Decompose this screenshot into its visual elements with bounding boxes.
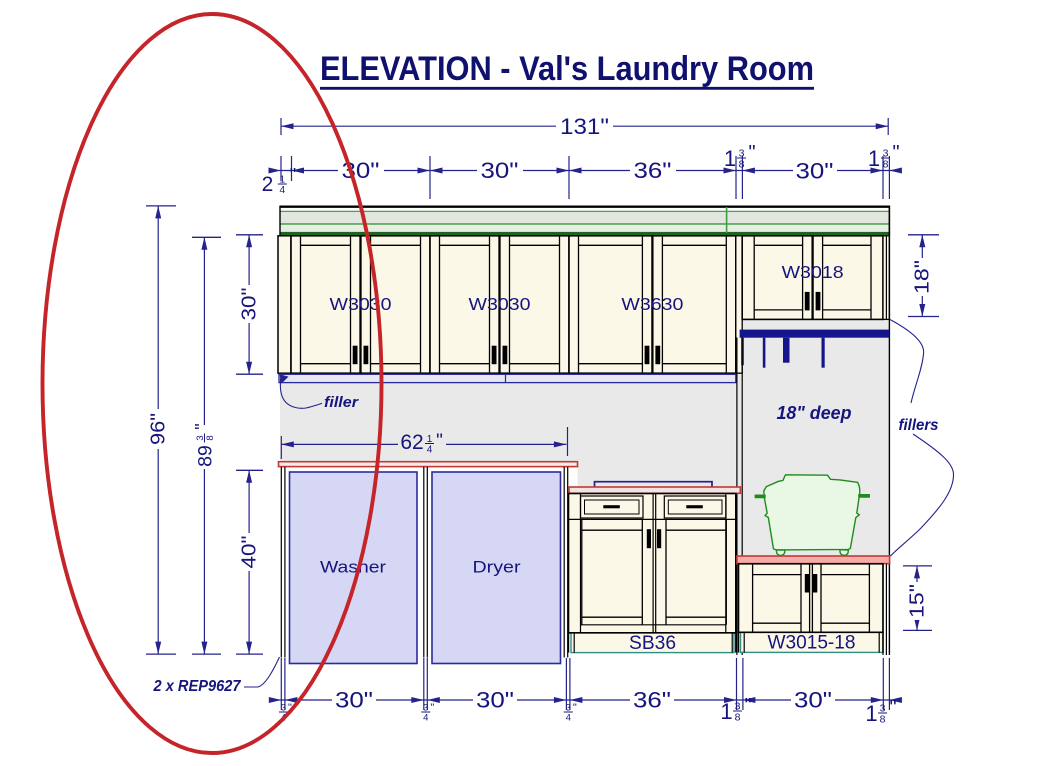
svg-text:131": 131" <box>560 114 609 139</box>
svg-text:8: 8 <box>205 435 216 440</box>
svg-text:1: 1 <box>868 146 880 171</box>
svg-text:30": 30" <box>335 688 373 713</box>
svg-text:30": 30" <box>476 688 514 713</box>
svg-text:4: 4 <box>427 445 433 456</box>
svg-text:18" deep: 18" deep <box>777 403 852 423</box>
svg-text:30": 30" <box>238 288 261 321</box>
svg-text:8: 8 <box>883 159 889 171</box>
svg-text:4: 4 <box>423 713 428 724</box>
svg-text:W3030: W3030 <box>469 294 531 314</box>
svg-text:filler: filler <box>324 394 359 411</box>
svg-text:1: 1 <box>720 699 732 724</box>
svg-text:36": 36" <box>634 158 672 183</box>
svg-text:": " <box>892 142 899 164</box>
svg-text:": " <box>889 697 896 719</box>
svg-text:36": 36" <box>633 688 671 713</box>
svg-text:W3015-18: W3015-18 <box>768 632 856 654</box>
svg-text:30": 30" <box>481 158 519 183</box>
svg-text:ELEVATION - Val's Laundry Room: ELEVATION - Val's Laundry Room <box>320 50 814 88</box>
svg-text:30": 30" <box>796 159 834 184</box>
svg-text:96": 96" <box>147 413 170 445</box>
svg-text:": " <box>192 423 212 429</box>
svg-text:2 x REP9627: 2 x REP9627 <box>153 678 242 695</box>
svg-text:30": 30" <box>794 688 832 713</box>
svg-text:": " <box>748 142 755 164</box>
svg-text:": " <box>430 702 434 714</box>
svg-text:18": 18" <box>911 260 934 294</box>
svg-text:Washer: Washer <box>320 558 386 577</box>
svg-text:SB36: SB36 <box>629 632 676 654</box>
svg-text:fillers: fillers <box>899 417 939 434</box>
svg-text:": " <box>744 695 751 717</box>
svg-text:8: 8 <box>735 712 741 724</box>
svg-text:1: 1 <box>724 146 736 171</box>
svg-text:W3630: W3630 <box>621 294 683 314</box>
svg-text:1: 1 <box>865 701 877 726</box>
svg-text:89: 89 <box>195 445 217 467</box>
svg-text:4: 4 <box>566 713 571 724</box>
svg-text:Dryer: Dryer <box>473 558 521 577</box>
svg-text:4: 4 <box>280 185 286 196</box>
svg-text:W3030: W3030 <box>330 294 392 314</box>
svg-text:8: 8 <box>880 714 886 726</box>
svg-text:40": 40" <box>238 536 261 569</box>
svg-text:": " <box>290 165 296 185</box>
svg-text:8: 8 <box>739 159 745 171</box>
svg-text:": " <box>436 431 443 452</box>
svg-text:62: 62 <box>400 431 423 454</box>
svg-text:": " <box>573 702 577 714</box>
svg-text:2: 2 <box>262 173 274 196</box>
svg-text:W3018: W3018 <box>782 262 844 282</box>
svg-text:15": 15" <box>906 584 929 618</box>
